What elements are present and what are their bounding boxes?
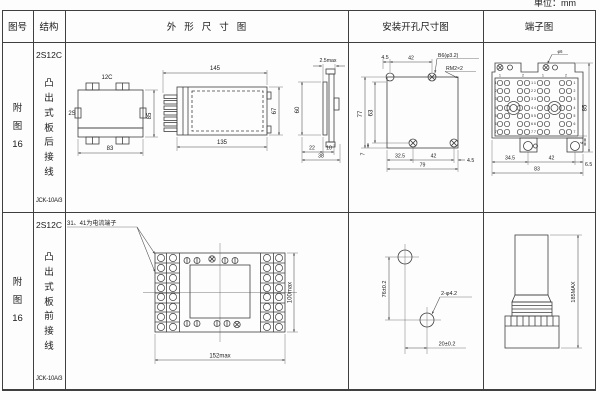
- dim-label: 83: [107, 146, 114, 152]
- terminal-top-label: φ6: [557, 49, 563, 54]
- dim-label: 4.5: [467, 158, 474, 164]
- row-number: 1: [574, 81, 576, 85]
- mounting-holes: [385, 244, 441, 354]
- figure-no-row1: 附图16: [11, 100, 24, 154]
- pair-number: 1 1: [531, 81, 536, 85]
- side-view: [164, 87, 271, 135]
- terminal-drawing-front-wiring: 185MAX: [483, 212, 596, 390]
- dim-label: 4.5: [381, 55, 388, 61]
- pair-number: 6 6: [531, 122, 536, 126]
- dim-label: 76±0.2: [382, 281, 388, 298]
- figure-no-cell-row1: 附图16: [2, 42, 33, 212]
- dim-label: 63: [369, 109, 375, 116]
- dim-label: 7: [361, 152, 367, 155]
- row-number: 3: [574, 97, 576, 101]
- structure-desc-row2: 凸出式板前接线: [43, 251, 56, 354]
- header-structure: 结构: [33, 10, 65, 42]
- current-terminal-note: 31、41为电流端子: [67, 219, 116, 227]
- front-top-label: 12C: [101, 75, 113, 81]
- row-number: 3: [495, 97, 497, 101]
- row-number: 6: [574, 122, 576, 126]
- dim-label: 20±0.2: [439, 342, 456, 348]
- hole-spec-label: B6(φ3.2): [438, 53, 459, 59]
- dim-label: 67: [272, 107, 278, 114]
- terminal-drawing-rear-wiring: 1 2 1 2 1 2 3 4 5 6 7 1 2 3 4 5 6 7 1 1 …: [483, 42, 596, 212]
- front-view: [75, 83, 146, 144]
- row-number: 4: [495, 106, 497, 110]
- type-row1: JCK-10A/3: [36, 198, 62, 204]
- figure-no-row2: 附图16: [11, 274, 24, 328]
- pair-number: 4 4: [531, 106, 536, 110]
- relay-side-view: [505, 235, 559, 348]
- row-number: 5: [574, 114, 576, 118]
- dim-label: 145: [210, 66, 221, 72]
- row-number: 7: [574, 130, 576, 134]
- col-label: 1: [499, 74, 501, 78]
- mounting-drawing-front-wiring: 76±0.2 20±0.2 2-φ4.2: [348, 212, 483, 390]
- row-number: 6: [495, 122, 497, 126]
- row-number: 7: [495, 130, 497, 134]
- dim-label: 10: [326, 146, 332, 152]
- col-label: 1: [542, 74, 544, 78]
- pair-number: 2 2: [531, 89, 536, 93]
- dim-label: 83: [534, 167, 540, 173]
- model-row2: 2S12C: [36, 220, 62, 230]
- outline-drawing-front-wiring: 31、41为电流端子 152max 100max: [65, 212, 348, 390]
- relay-side-dimensions: 185MAX: [550, 235, 582, 348]
- row-number: 5: [495, 114, 497, 118]
- mounting-drawing-rear-wiring: 4.5 42 B6(φ3.2) RM2×2 77 63 7 32.5 42 4.…: [348, 42, 483, 212]
- dim-label: 85: [147, 112, 153, 119]
- thread-spec-label: RM2×2: [446, 66, 463, 72]
- dim-label: 60: [295, 106, 301, 113]
- mounting-dimensions: 4.5 42 B6(φ3.2) RM2×2 77 63 7 32.5 42 4.…: [358, 53, 479, 172]
- pair-number: 3 3: [531, 97, 536, 101]
- type-row2: JCK-10A/3: [36, 376, 62, 382]
- dim-label: 79: [420, 163, 426, 169]
- front-left-label: 2S: [68, 111, 75, 117]
- header-terminal: 端子图: [483, 10, 595, 42]
- row-number: 2: [495, 89, 497, 93]
- hole-spec-label: 2-φ4.2: [441, 291, 457, 297]
- col-label: 2: [522, 74, 524, 78]
- pair-number: 7 7: [531, 130, 536, 134]
- dim-label: 6.5: [585, 162, 592, 168]
- outline-drawing-rear-wiring: 12C 2S 83 85 145 135: [65, 42, 348, 212]
- dim-label: 85: [583, 104, 589, 111]
- front-plate-dimensions: 31、41为电流端子 152max 100max: [67, 219, 298, 364]
- unit-label: 单位：mm: [534, 0, 576, 9]
- header-mounting: 安装开孔尺寸图: [348, 10, 483, 42]
- dim-label: 100max: [288, 282, 294, 303]
- structure-cell-row1: 2S12C 凸出式板后接线 JCK-10A/3: [33, 42, 65, 212]
- terminal-body: [492, 63, 583, 152]
- model-row1: 2S12C: [36, 50, 62, 60]
- dim-label: 22: [309, 146, 315, 152]
- structure-desc-row1: 凸出式板后接线: [43, 77, 56, 180]
- catalog-page: 单位：mm 图号 结构 外形尺寸图 安装开孔尺寸图 端子图 附图16 2S12C…: [0, 0, 600, 400]
- flange-view-dimensions: 2.5max 60 22 10 38: [295, 58, 345, 163]
- row-number: 4: [574, 106, 576, 110]
- header-outline: 外形尺寸图: [65, 10, 348, 42]
- pair-number: 5 5: [531, 114, 536, 118]
- row-number: 1: [495, 81, 497, 85]
- dim-label: 152max: [209, 354, 230, 360]
- dim-label: 185MAX: [571, 281, 577, 302]
- dim-label: 2.5max: [319, 58, 336, 64]
- dim-label: 42: [431, 154, 437, 160]
- dim-label: 32.5: [395, 154, 405, 160]
- front-plate: [143, 243, 297, 342]
- dim-label: 34.5: [505, 156, 515, 162]
- col-label: 2: [565, 74, 567, 78]
- mounting-panel: [386, 73, 458, 148]
- dim-label: 38: [318, 154, 324, 160]
- row-number: 2: [574, 89, 576, 93]
- dim-label: 135: [217, 140, 228, 146]
- dim-label: 42: [549, 156, 555, 162]
- dim-label: 77: [358, 110, 364, 117]
- dim-label: 42: [408, 56, 414, 62]
- structure-cell-row2: 2S12C 凸出式板前接线 JCK-10A/3: [33, 212, 65, 390]
- side-view-dimensions: 145 135 67: [163, 66, 283, 151]
- front-view-dimensions: 12C 2S 83 85: [68, 75, 158, 156]
- flange-view: [323, 69, 339, 147]
- header-figure-no: 图号: [2, 10, 33, 42]
- figure-no-cell-row2: 附图16: [2, 212, 33, 390]
